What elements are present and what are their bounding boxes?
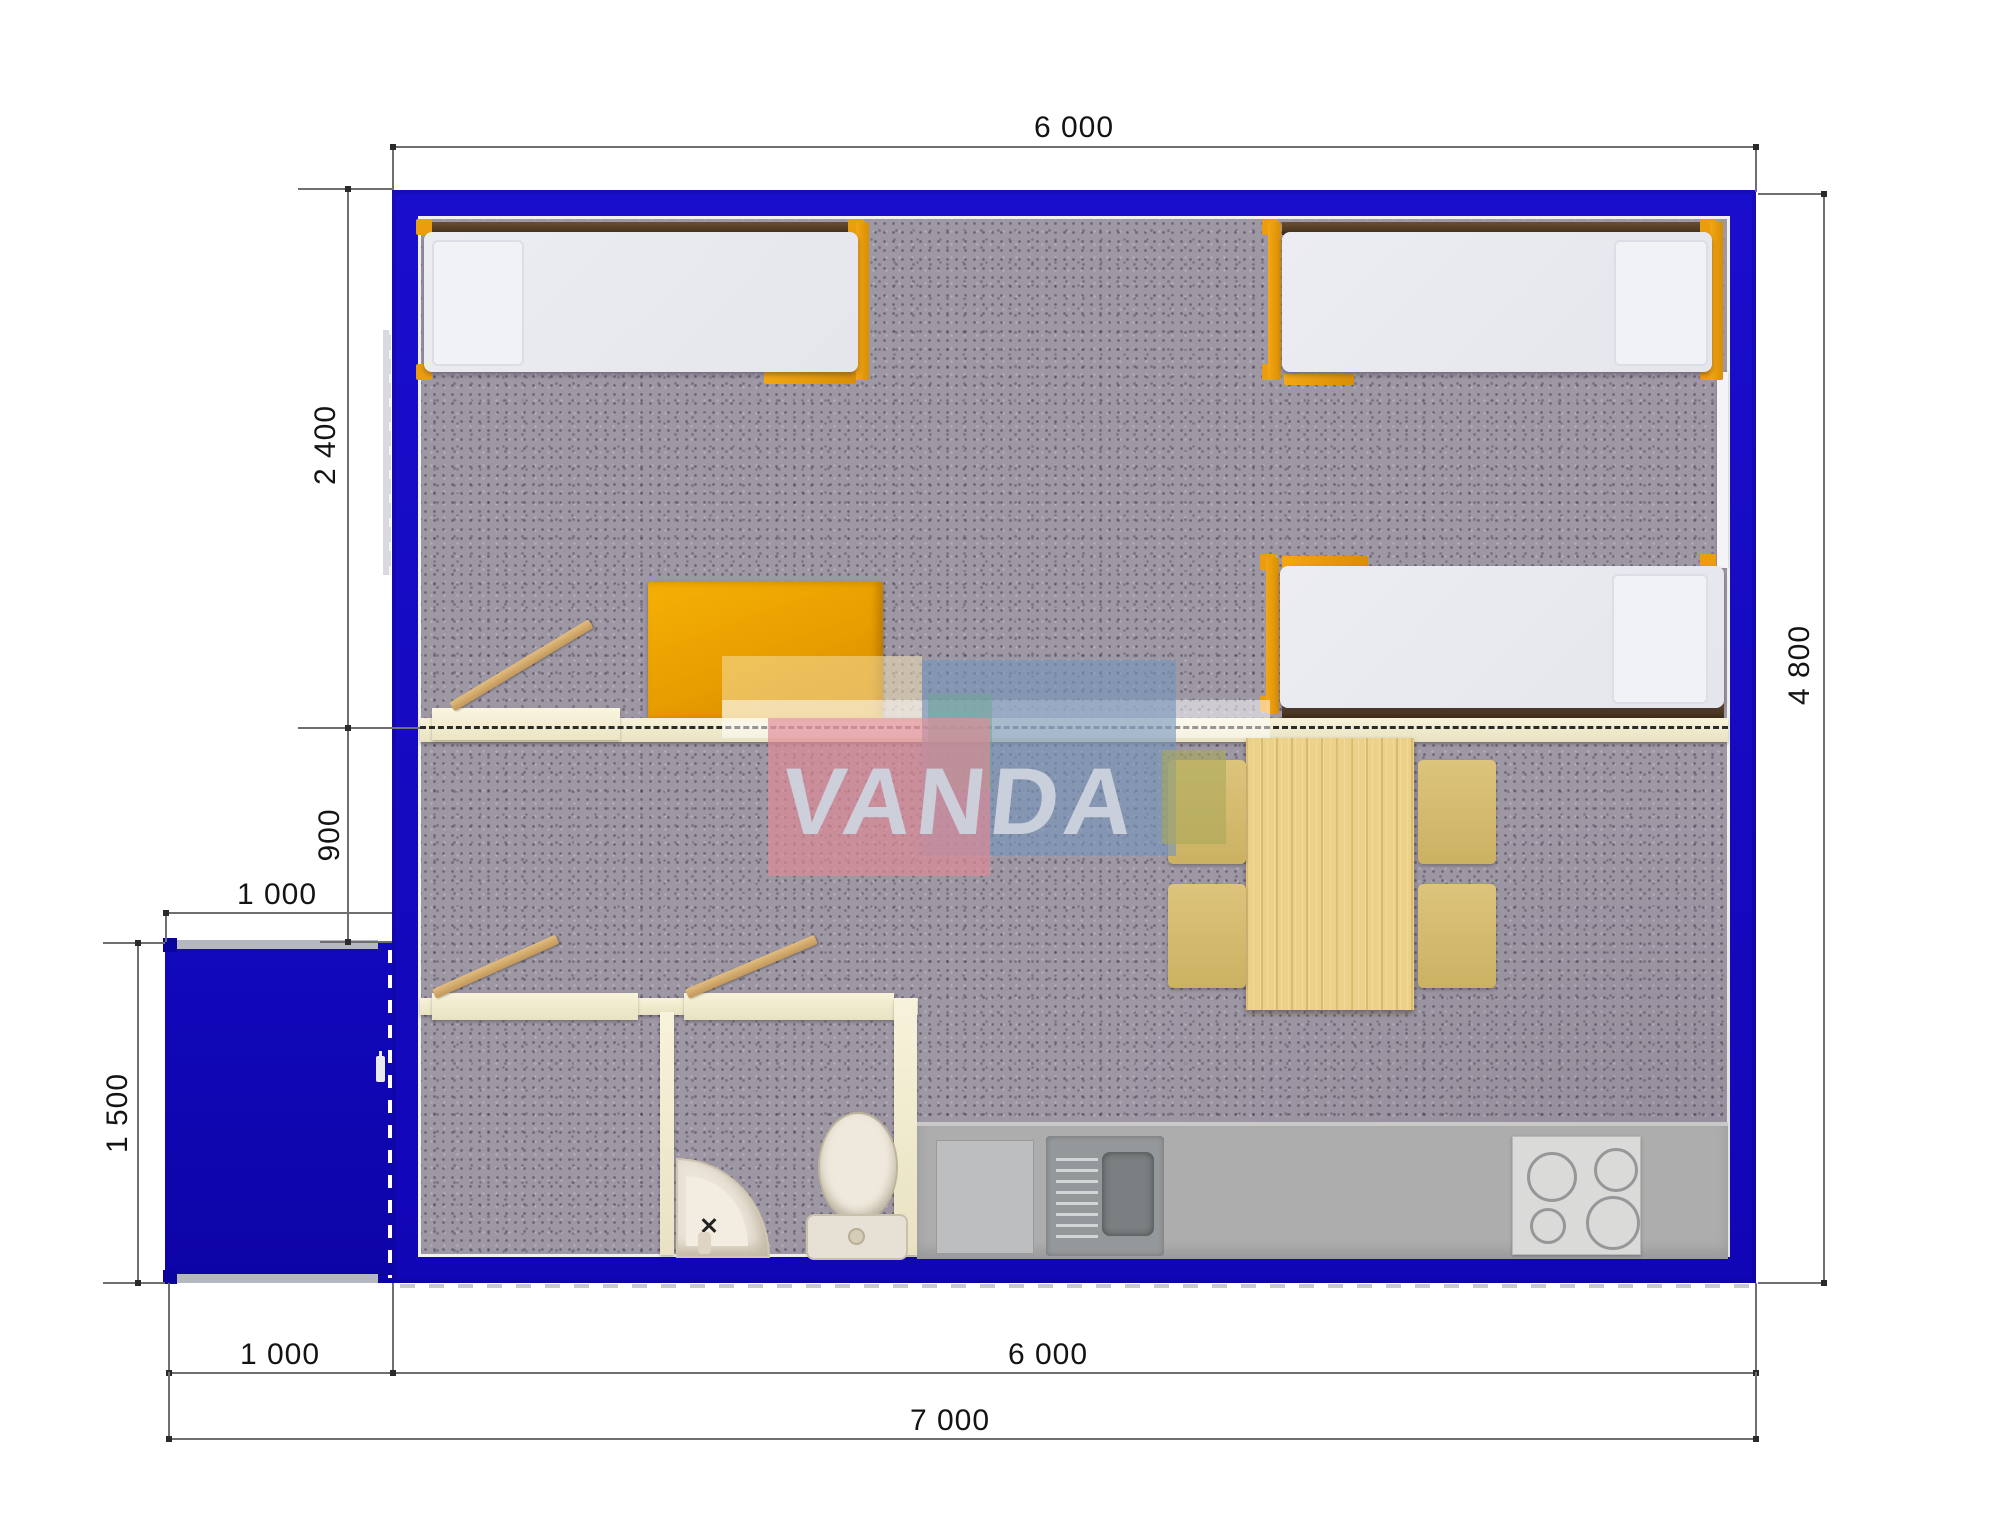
watermark-logo-text: VANDA [776,748,1143,857]
dim-dot [390,144,396,150]
toilet-flush-button [848,1228,865,1245]
bed-2-side-rail-left [1268,222,1281,380]
dim-ext [1758,193,1825,195]
stove-burner [1527,1152,1577,1202]
dim-ext [168,1372,170,1438]
dim-line-porch-depth [137,943,139,1283]
dim-ext [1755,1372,1757,1438]
porch-slab [165,943,392,1283]
dim-label-bottom-body-width: 6 000 [1008,1340,1088,1370]
stove-burner [1594,1148,1638,1192]
watermark-olive-block [1162,750,1226,844]
dim-label-bottom-porch-width: 1 000 [240,1340,320,1370]
bed-1-pillow [432,240,524,366]
hall-door-lintel-2 [684,993,894,1020]
dim-line-top [392,146,1756,148]
dim-label-left-bedroom-depth: 2 400 [311,405,341,485]
dim-line-left [347,188,349,943]
stove-burner [1530,1208,1566,1244]
dim-label-top-width: 6 000 [1034,113,1114,143]
bed-1-foot-rail [764,372,856,384]
dim-ext [392,1283,394,1372]
entrance-door-handle [376,1056,385,1082]
entrance-door-dashed [388,950,392,1278]
bottom-wall-dash-trim [400,1284,1752,1288]
dim-dot [1821,1280,1827,1286]
dim-dot [390,1370,396,1376]
left-wall-dash-trim [389,230,392,935]
dim-line-porch-width [165,912,392,914]
dim-dot [1753,1436,1759,1442]
dim-dot [1753,144,1759,150]
dining-chair [1418,760,1496,864]
wall-hall-bathroom [660,1012,674,1255]
dim-label-right-height: 4 800 [1785,625,1815,705]
dim-ext [103,942,165,944]
washbasin-pedestal [698,1232,711,1254]
bed-2-foot-rail [1284,374,1354,385]
dim-label-left-passage: 900 [315,808,345,861]
partition-door-sill [432,708,620,740]
sink-drainboard [1056,1158,1098,1238]
dim-dot [166,1436,172,1442]
dim-ext [1755,1283,1757,1372]
dim-label-porch-depth: 1 500 [103,1073,133,1153]
dim-dot [135,940,141,946]
dim-dot [135,1280,141,1286]
dim-dot [345,939,351,945]
dim-label-porch-width: 1 000 [237,880,317,910]
dim-dot [1821,191,1827,197]
dim-line-right [1823,193,1825,1283]
kitchen-cabinet-panel [936,1140,1034,1254]
dim-dot [163,910,169,916]
dining-chair [1418,884,1496,988]
toilet-lid [818,1112,898,1222]
dim-dot [345,186,351,192]
dim-line-bottom-split [168,1372,1756,1374]
porch-step-bottom [176,1274,378,1283]
dim-ext [298,727,420,729]
dim-ext [1755,146,1757,192]
dim-ext [103,1282,165,1284]
floor-plan-canvas: VANDA 6 000 4 800 2 400 900 1 000 1 500 [0,0,2000,1537]
dim-dot [345,725,351,731]
dim-ext [392,146,394,190]
stove-burner [1586,1196,1640,1250]
sink-basin [1102,1152,1154,1236]
dining-chair [1168,884,1246,988]
dim-ext [1758,1282,1825,1284]
window-right [1717,372,1728,568]
dim-label-bottom-total-width: 7 000 [910,1406,990,1436]
dim-ext [320,941,392,943]
dim-line-bottom-total [168,1438,1756,1440]
porch-corner-bottom [163,1270,177,1284]
dining-table [1246,738,1414,1010]
bed-3-side-rail [1266,558,1279,714]
dim-ext [168,1283,170,1372]
dim-ext [165,912,167,942]
hall-door-lintel-1 [432,993,638,1020]
bed-3-pillow [1612,574,1708,704]
bed-2-pillow [1614,240,1708,366]
